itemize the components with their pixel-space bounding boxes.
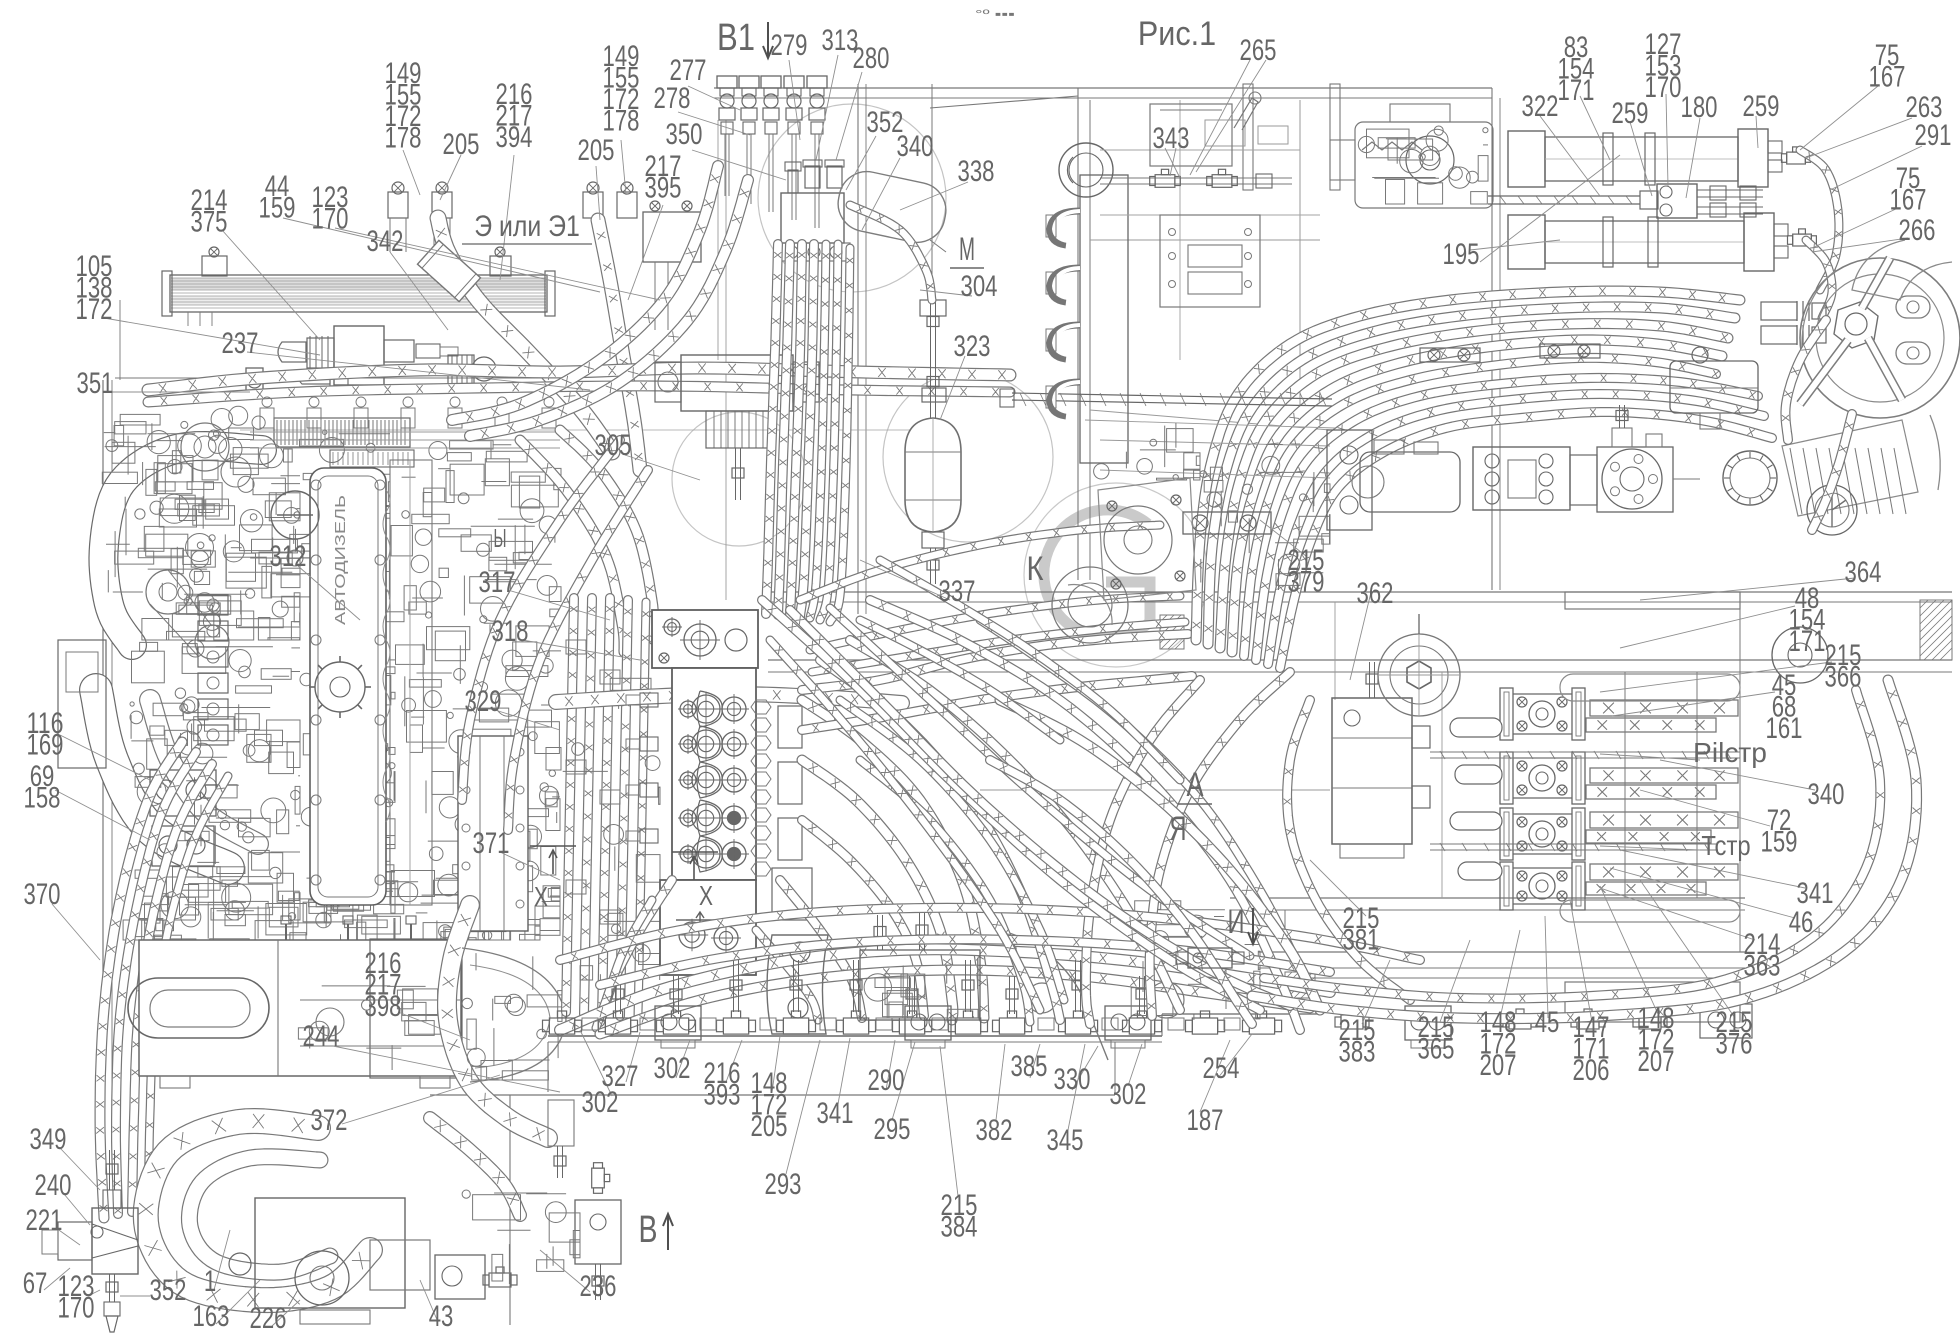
svg-text:205: 205 [751,1110,788,1143]
svg-text:323: 323 [954,330,991,363]
svg-text:383: 383 [1339,1036,1376,1069]
svg-text:Я: Я [1170,810,1187,848]
svg-text:205: 205 [443,128,480,161]
svg-text:393: 393 [704,1079,741,1112]
svg-text:385: 385 [1011,1050,1048,1083]
svg-text:167: 167 [1890,184,1927,217]
svg-text:349: 349 [30,1123,67,1156]
svg-text:А: А [1187,766,1204,804]
svg-text:342: 342 [367,225,404,258]
svg-text:226: 226 [250,1302,287,1335]
svg-text:379: 379 [1288,566,1325,599]
svg-text:375: 375 [191,206,228,239]
svg-text:АВТОДИЗЕЛЬ: АВТОДИЗЕЛЬ [332,495,349,625]
svg-text:67: 67 [23,1267,48,1300]
svg-text:169: 169 [27,729,64,762]
svg-text:302: 302 [654,1052,691,1085]
svg-text:312: 312 [270,540,307,573]
svg-text:384: 384 [941,1211,978,1244]
svg-text:363: 363 [1744,950,1781,983]
svg-text:318: 318 [492,615,529,648]
svg-text:171: 171 [1558,74,1595,107]
svg-text:345: 345 [1047,1124,1084,1157]
svg-text:206: 206 [1573,1054,1610,1087]
svg-text:343: 343 [1153,122,1190,155]
svg-text:1: 1 [204,1265,216,1298]
svg-text:221: 221 [26,1204,63,1237]
svg-text:295: 295 [874,1113,911,1146]
svg-text:К: К [1027,550,1044,588]
svg-text:45: 45 [1535,1006,1560,1039]
svg-text:180: 180 [1681,91,1718,124]
svg-text:398: 398 [365,990,402,1023]
svg-text:305: 305 [595,429,632,462]
svg-text:376: 376 [1716,1028,1753,1061]
svg-text:46: 46 [1789,906,1814,939]
svg-text:163: 163 [193,1300,230,1333]
svg-text:350: 350 [666,118,703,151]
svg-text:317: 317 [479,566,516,599]
svg-text:170: 170 [58,1292,95,1325]
svg-text:236: 236 [580,1270,617,1303]
svg-text:382: 382 [976,1114,1013,1147]
svg-text:322: 322 [1522,90,1559,123]
svg-text:X: X [534,881,548,912]
svg-text:340: 340 [897,130,934,163]
svg-text:158: 158 [24,782,61,815]
svg-text:В1: В1 [717,17,755,59]
svg-text:178: 178 [603,105,640,138]
svg-text:304: 304 [961,270,998,303]
svg-text:Рilстр: Рilстр [1693,737,1767,768]
svg-text:159: 159 [1761,826,1798,859]
svg-text:279: 279 [771,29,808,62]
svg-text:278: 278 [654,82,691,115]
svg-text:Э или Э1: Э или Э1 [474,210,580,243]
svg-text:X: X [699,880,713,911]
svg-text:340: 340 [1808,778,1845,811]
svg-text:Рис.1: Рис.1 [1138,15,1216,53]
svg-text:171: 171 [1789,625,1826,658]
svg-text:170: 170 [1645,71,1682,104]
svg-text:172: 172 [76,293,113,326]
svg-text:302: 302 [582,1086,619,1119]
svg-text:365: 365 [1418,1033,1455,1066]
svg-text:280: 280 [853,42,890,75]
svg-text:207: 207 [1480,1049,1517,1082]
svg-text:205: 205 [578,134,615,167]
svg-text:240: 240 [35,1169,72,1202]
svg-text:254: 254 [1203,1052,1240,1085]
svg-text:351: 351 [77,367,114,400]
svg-text:237: 237 [222,327,259,360]
svg-text:207: 207 [1638,1045,1675,1078]
svg-text:187: 187 [1187,1104,1224,1137]
svg-text:291: 291 [1915,119,1952,152]
svg-text:244: 244 [303,1020,340,1053]
svg-text:366: 366 [1825,661,1862,694]
svg-text:159: 159 [259,192,296,225]
svg-text:178: 178 [385,122,422,155]
svg-text:337: 337 [939,575,976,608]
svg-text:259: 259 [1743,90,1780,123]
svg-text:330: 330 [1054,1063,1091,1096]
svg-text:370: 370 [24,878,61,911]
svg-text:290: 290 [868,1064,905,1097]
svg-text:381: 381 [1343,924,1380,957]
svg-text:161: 161 [1766,712,1803,745]
svg-text:195: 195 [1443,238,1480,271]
svg-text:259: 259 [1612,97,1649,130]
svg-text:395: 395 [645,172,682,205]
svg-text:266: 266 [1899,214,1936,247]
svg-text:43: 43 [429,1300,454,1333]
svg-text:293: 293 [765,1168,802,1201]
svg-text:В: В [639,1209,658,1251]
svg-text:170: 170 [312,203,349,236]
svg-text:329: 329 [465,685,502,718]
svg-text:И: И [1228,903,1245,941]
svg-text:394: 394 [496,121,533,154]
svg-text:Тстр: Тстр [1701,830,1750,861]
svg-text:Ы: Ы [494,523,507,553]
svg-text:302: 302 [1110,1078,1147,1111]
svg-text:338: 338 [958,155,995,188]
svg-text:°º ▪▪▪: °º ▪▪▪ [975,7,1015,21]
svg-text:265: 265 [1240,34,1277,67]
svg-text:364: 364 [1845,556,1882,589]
svg-text:371: 371 [473,827,510,860]
svg-text:362: 362 [1357,577,1394,610]
svg-text:352: 352 [150,1274,187,1307]
svg-text:167: 167 [1869,61,1906,94]
svg-text:341: 341 [817,1097,854,1130]
svg-text:372: 372 [311,1104,348,1137]
svg-text:М: М [959,231,975,267]
